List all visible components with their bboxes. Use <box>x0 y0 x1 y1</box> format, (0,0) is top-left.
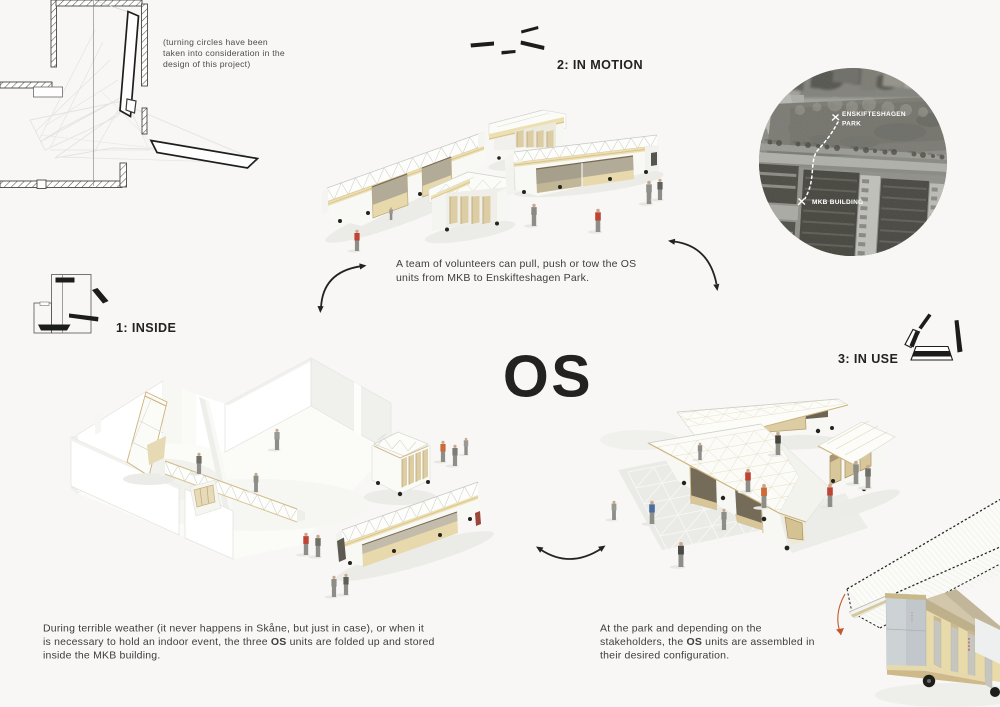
svg-text:(turning circles have been: (turning circles have been <box>163 37 268 47</box>
svg-text:inside the MKB building.: inside the MKB building. <box>43 650 160 662</box>
svg-text:1: INSIDE: 1: INSIDE <box>116 321 176 335</box>
svg-text:is necessary to hold an indoor: is necessary to hold an indoor event, th… <box>43 636 435 648</box>
svg-text:During terrible weather (it ne: During terrible weather (it never happen… <box>43 623 424 635</box>
svg-text:At the park and depending on t: At the park and depending on the <box>600 623 762 635</box>
svg-text:ENSKIFTESHAGEN: ENSKIFTESHAGEN <box>842 111 906 118</box>
svg-text:A team of volunteers can pull,: A team of volunteers can pull, push or t… <box>396 258 636 270</box>
svg-text:their desired configuration.: their desired configuration. <box>600 650 729 662</box>
svg-text:design of this project): design of this project) <box>163 59 250 69</box>
svg-text:units from MKB to Enskifteshag: units from MKB to Enskifteshagen Park. <box>396 272 589 284</box>
svg-text:OS: OS <box>503 344 593 410</box>
svg-text:stakeholders, the OS units are: stakeholders, the OS units are assembled… <box>600 636 815 648</box>
svg-text:3: IN USE: 3: IN USE <box>838 352 898 366</box>
svg-text:taken into consideration in th: taken into consideration in the <box>163 48 285 58</box>
svg-text:PARK: PARK <box>842 121 861 128</box>
svg-text:2: IN MOTION: 2: IN MOTION <box>557 58 643 72</box>
svg-text:MKB BUILDING: MKB BUILDING <box>812 199 863 206</box>
